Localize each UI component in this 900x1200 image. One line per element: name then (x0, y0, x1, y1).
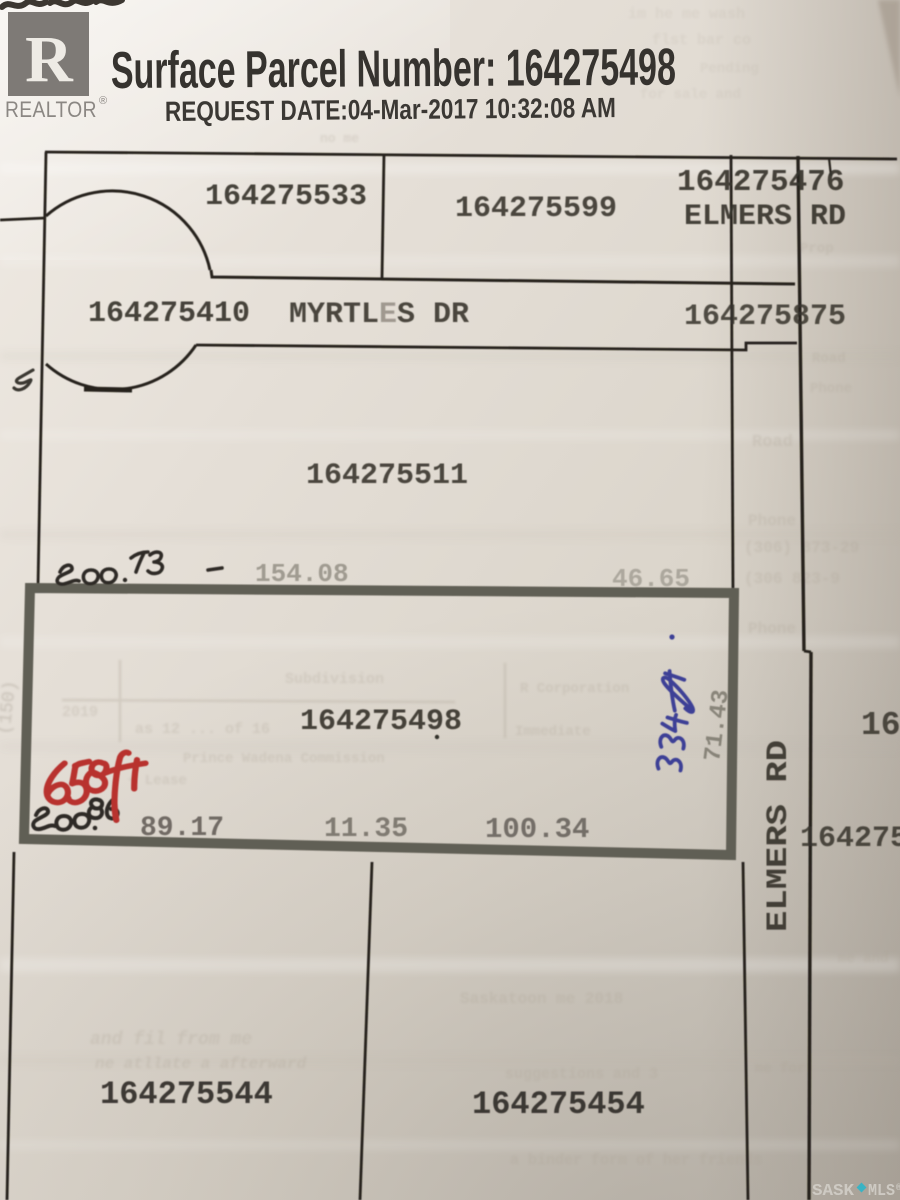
svg-text:2019: 2019 (62, 704, 98, 721)
svg-text:164275875: 164275875 (684, 300, 846, 334)
svg-text:SASK: SASK (812, 1182, 855, 1200)
svg-text:and fil from me: and fil from me (90, 1030, 252, 1050)
svg-text:ELMERS RD: ELMERS RD (762, 740, 796, 932)
svg-text:ELMERS RD: ELMERS RD (684, 200, 846, 234)
svg-text:164275476: 164275476 (677, 165, 844, 200)
svg-text:Phone: Phone (748, 512, 796, 530)
svg-text:im he me wash: im he me wash (628, 6, 745, 23)
svg-text:Immediate: Immediate (515, 724, 591, 740)
svg-text:Phone: Phone (748, 620, 796, 638)
svg-text:REALTOR: REALTOR (5, 97, 97, 122)
svg-text:154.08: 154.08 (255, 559, 349, 589)
svg-text:Road: Road (812, 351, 846, 367)
svg-text:16: 16 (861, 707, 900, 744)
svg-text:ne atllate a afterward: ne atllate a afterward (95, 1055, 307, 1073)
svg-text:11.35: 11.35 (324, 814, 408, 845)
svg-text:me and: me and (838, 951, 888, 967)
svg-text:as 12 ... of 16: as 12 ... of 16 (135, 721, 270, 738)
svg-text:Phone: Phone (810, 381, 852, 397)
svg-text:Prop: Prop (800, 241, 834, 257)
svg-text:MLS: MLS (868, 1182, 895, 1200)
svg-text:100.34: 100.34 (485, 813, 589, 846)
svg-text:a binder form of her friends: a binder form of her friends (510, 1152, 762, 1169)
svg-text:Surface Parcel Number: 1642754: Surface Parcel Number: 164275498 (111, 39, 676, 100)
svg-text:164275: 164275 (800, 822, 900, 856)
svg-text:suggestions and 3: suggestions and 3 (505, 1066, 658, 1083)
svg-text:Road: Road (752, 433, 793, 452)
svg-text:Pending: Pending (700, 61, 759, 77)
svg-text:Subdivision: Subdivision (285, 671, 384, 688)
svg-text:164275511: 164275511 (306, 459, 468, 493)
svg-text:(306 823-9: (306 823-9 (744, 570, 840, 588)
svg-text:®: ® (99, 95, 107, 107)
svg-text:®: ® (896, 1183, 900, 1193)
svg-text:R Corporation: R Corporation (520, 681, 629, 697)
svg-text:REQUEST DATE:04-Mar-2017 10:32: REQUEST DATE:04-Mar-2017 10:32:08 AM (165, 92, 616, 127)
svg-text:R: R (25, 23, 74, 96)
svg-text:89.17: 89.17 (140, 813, 224, 844)
svg-text:Prince Wadena Commission: Prince Wadena Commission (183, 751, 385, 767)
svg-text:164275533: 164275533 (205, 180, 367, 214)
svg-text:flst bar co: flst bar co (652, 32, 751, 49)
svg-text:Saskatoon me 2018: Saskatoon me 2018 (460, 990, 623, 1008)
svg-text:46.65: 46.65 (612, 564, 690, 594)
svg-text:me for: me for (755, 1061, 805, 1077)
svg-text:164275498: 164275498 (300, 705, 462, 739)
svg-text:164275544: 164275544 (100, 1076, 273, 1113)
svg-text:for sale and: for sale and (640, 87, 741, 103)
svg-text:164275599: 164275599 (455, 192, 617, 226)
svg-text:no me: no me (320, 131, 359, 146)
svg-text:164275410: 164275410 (88, 297, 250, 331)
svg-text:MYRTLES DR: MYRTLES DR (289, 298, 469, 332)
svg-text:164275454: 164275454 (472, 1086, 645, 1123)
